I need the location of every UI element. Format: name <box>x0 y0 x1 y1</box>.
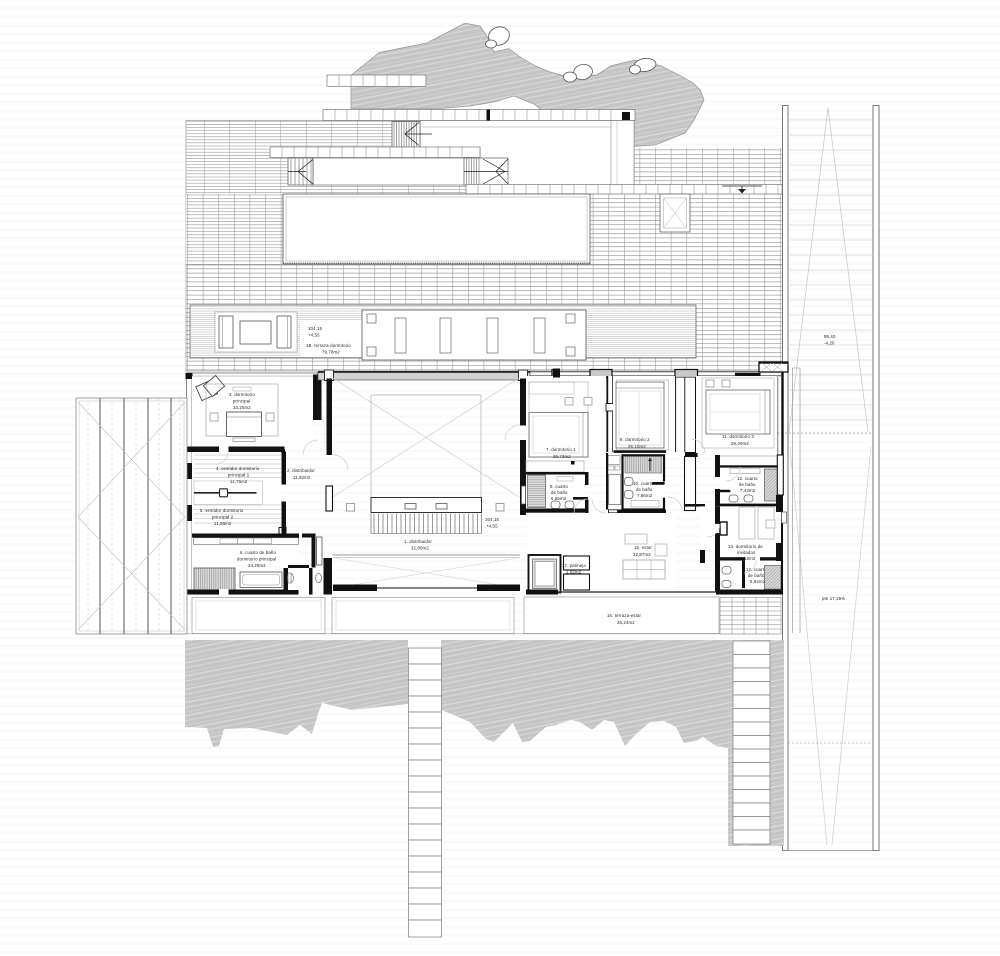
svg-text:13. dormitorio de: 13. dormitorio de <box>728 544 763 549</box>
svg-text:79,78m2: 79,78m2 <box>322 350 340 355</box>
svg-text:de baño: de baño <box>636 487 653 492</box>
svg-text:33,25m2: 33,25m2 <box>233 405 251 410</box>
svg-text:8. cuarto: 8. cuarto <box>550 484 569 489</box>
svg-text:principal: principal <box>233 399 250 404</box>
svg-text:24,29m2: 24,29m2 <box>248 563 266 568</box>
svg-text:invitados: invitados <box>737 550 755 555</box>
svg-text:15. estar: 15. estar <box>634 545 652 550</box>
svg-text:11. dormitorio 3: 11. dormitorio 3 <box>722 434 754 439</box>
svg-text:104,15: 104,15 <box>308 326 323 331</box>
svg-text:11,82m2: 11,82m2 <box>293 475 311 480</box>
svg-text:32,80m2: 32,80m2 <box>411 546 429 551</box>
svg-text:1. distribuidor: 1. distribuidor <box>404 539 432 544</box>
svg-text:10. cuarto: 10. cuarto <box>633 481 654 486</box>
svg-text:26,24m2: 26,24m2 <box>617 620 635 625</box>
svg-text:1,02m2: 1,02m2 <box>566 570 582 575</box>
svg-text:1B. terraza-dormitorio: 1B. terraza-dormitorio <box>306 343 351 348</box>
svg-text:7. dormitorio 1: 7. dormitorio 1 <box>546 447 576 452</box>
svg-text:5. vestidor dormitorio: 5. vestidor dormitorio <box>200 508 244 513</box>
svg-text:4. vestidor dormitorio: 4. vestidor dormitorio <box>216 466 260 471</box>
svg-text:2. distribuidor: 2. distribuidor <box>287 468 315 473</box>
svg-text:3. dormitorio: 3. dormitorio <box>229 392 255 397</box>
svg-text:principal 1: principal 1 <box>228 473 250 478</box>
svg-text:5,92m2: 5,92m2 <box>750 579 766 584</box>
svg-text:29,40m2: 29,40m2 <box>731 441 749 446</box>
svg-text:7,43m2: 7,43m2 <box>740 488 756 493</box>
svg-text:11,80m2: 11,80m2 <box>214 521 232 526</box>
svg-text:25,10m2: 25,10m2 <box>628 444 646 449</box>
svg-text:de baño: de baño <box>739 482 756 487</box>
svg-text:17. patinejo: 17. patinejo <box>562 563 586 568</box>
svg-text:29,72m2: 29,72m2 <box>553 454 571 459</box>
svg-text:6,65m2: 6,65m2 <box>551 496 567 501</box>
svg-text:de baño: de baño <box>551 490 568 495</box>
svg-text:16. terraza-estar: 16. terraza-estar <box>607 613 641 618</box>
svg-text:32,87m2: 32,87m2 <box>633 552 651 557</box>
svg-text:principal 2: principal 2 <box>212 515 234 520</box>
svg-text:6. cuarto de baño: 6. cuarto de baño <box>240 550 276 555</box>
svg-text:104,15: 104,15 <box>485 517 500 522</box>
svg-text:pte.17,25%: pte.17,25% <box>822 596 845 601</box>
svg-text:95,40: 95,40 <box>824 334 836 339</box>
svg-text:11,76m2: 11,76m2 <box>230 479 248 484</box>
svg-text:+4,55: +4,55 <box>486 524 498 529</box>
svg-text:+4,55: +4,55 <box>308 333 320 338</box>
svg-text:9. dormitorio 2: 9. dormitorio 2 <box>620 437 650 442</box>
svg-text:12. cuarto: 12. cuarto <box>737 476 758 481</box>
svg-text:7,56m2: 7,56m2 <box>637 493 653 498</box>
svg-text:-4,20: -4,20 <box>824 341 835 346</box>
svg-text:de baño: de baño <box>748 573 765 578</box>
svg-text:dormitorio principal: dormitorio principal <box>237 557 276 562</box>
